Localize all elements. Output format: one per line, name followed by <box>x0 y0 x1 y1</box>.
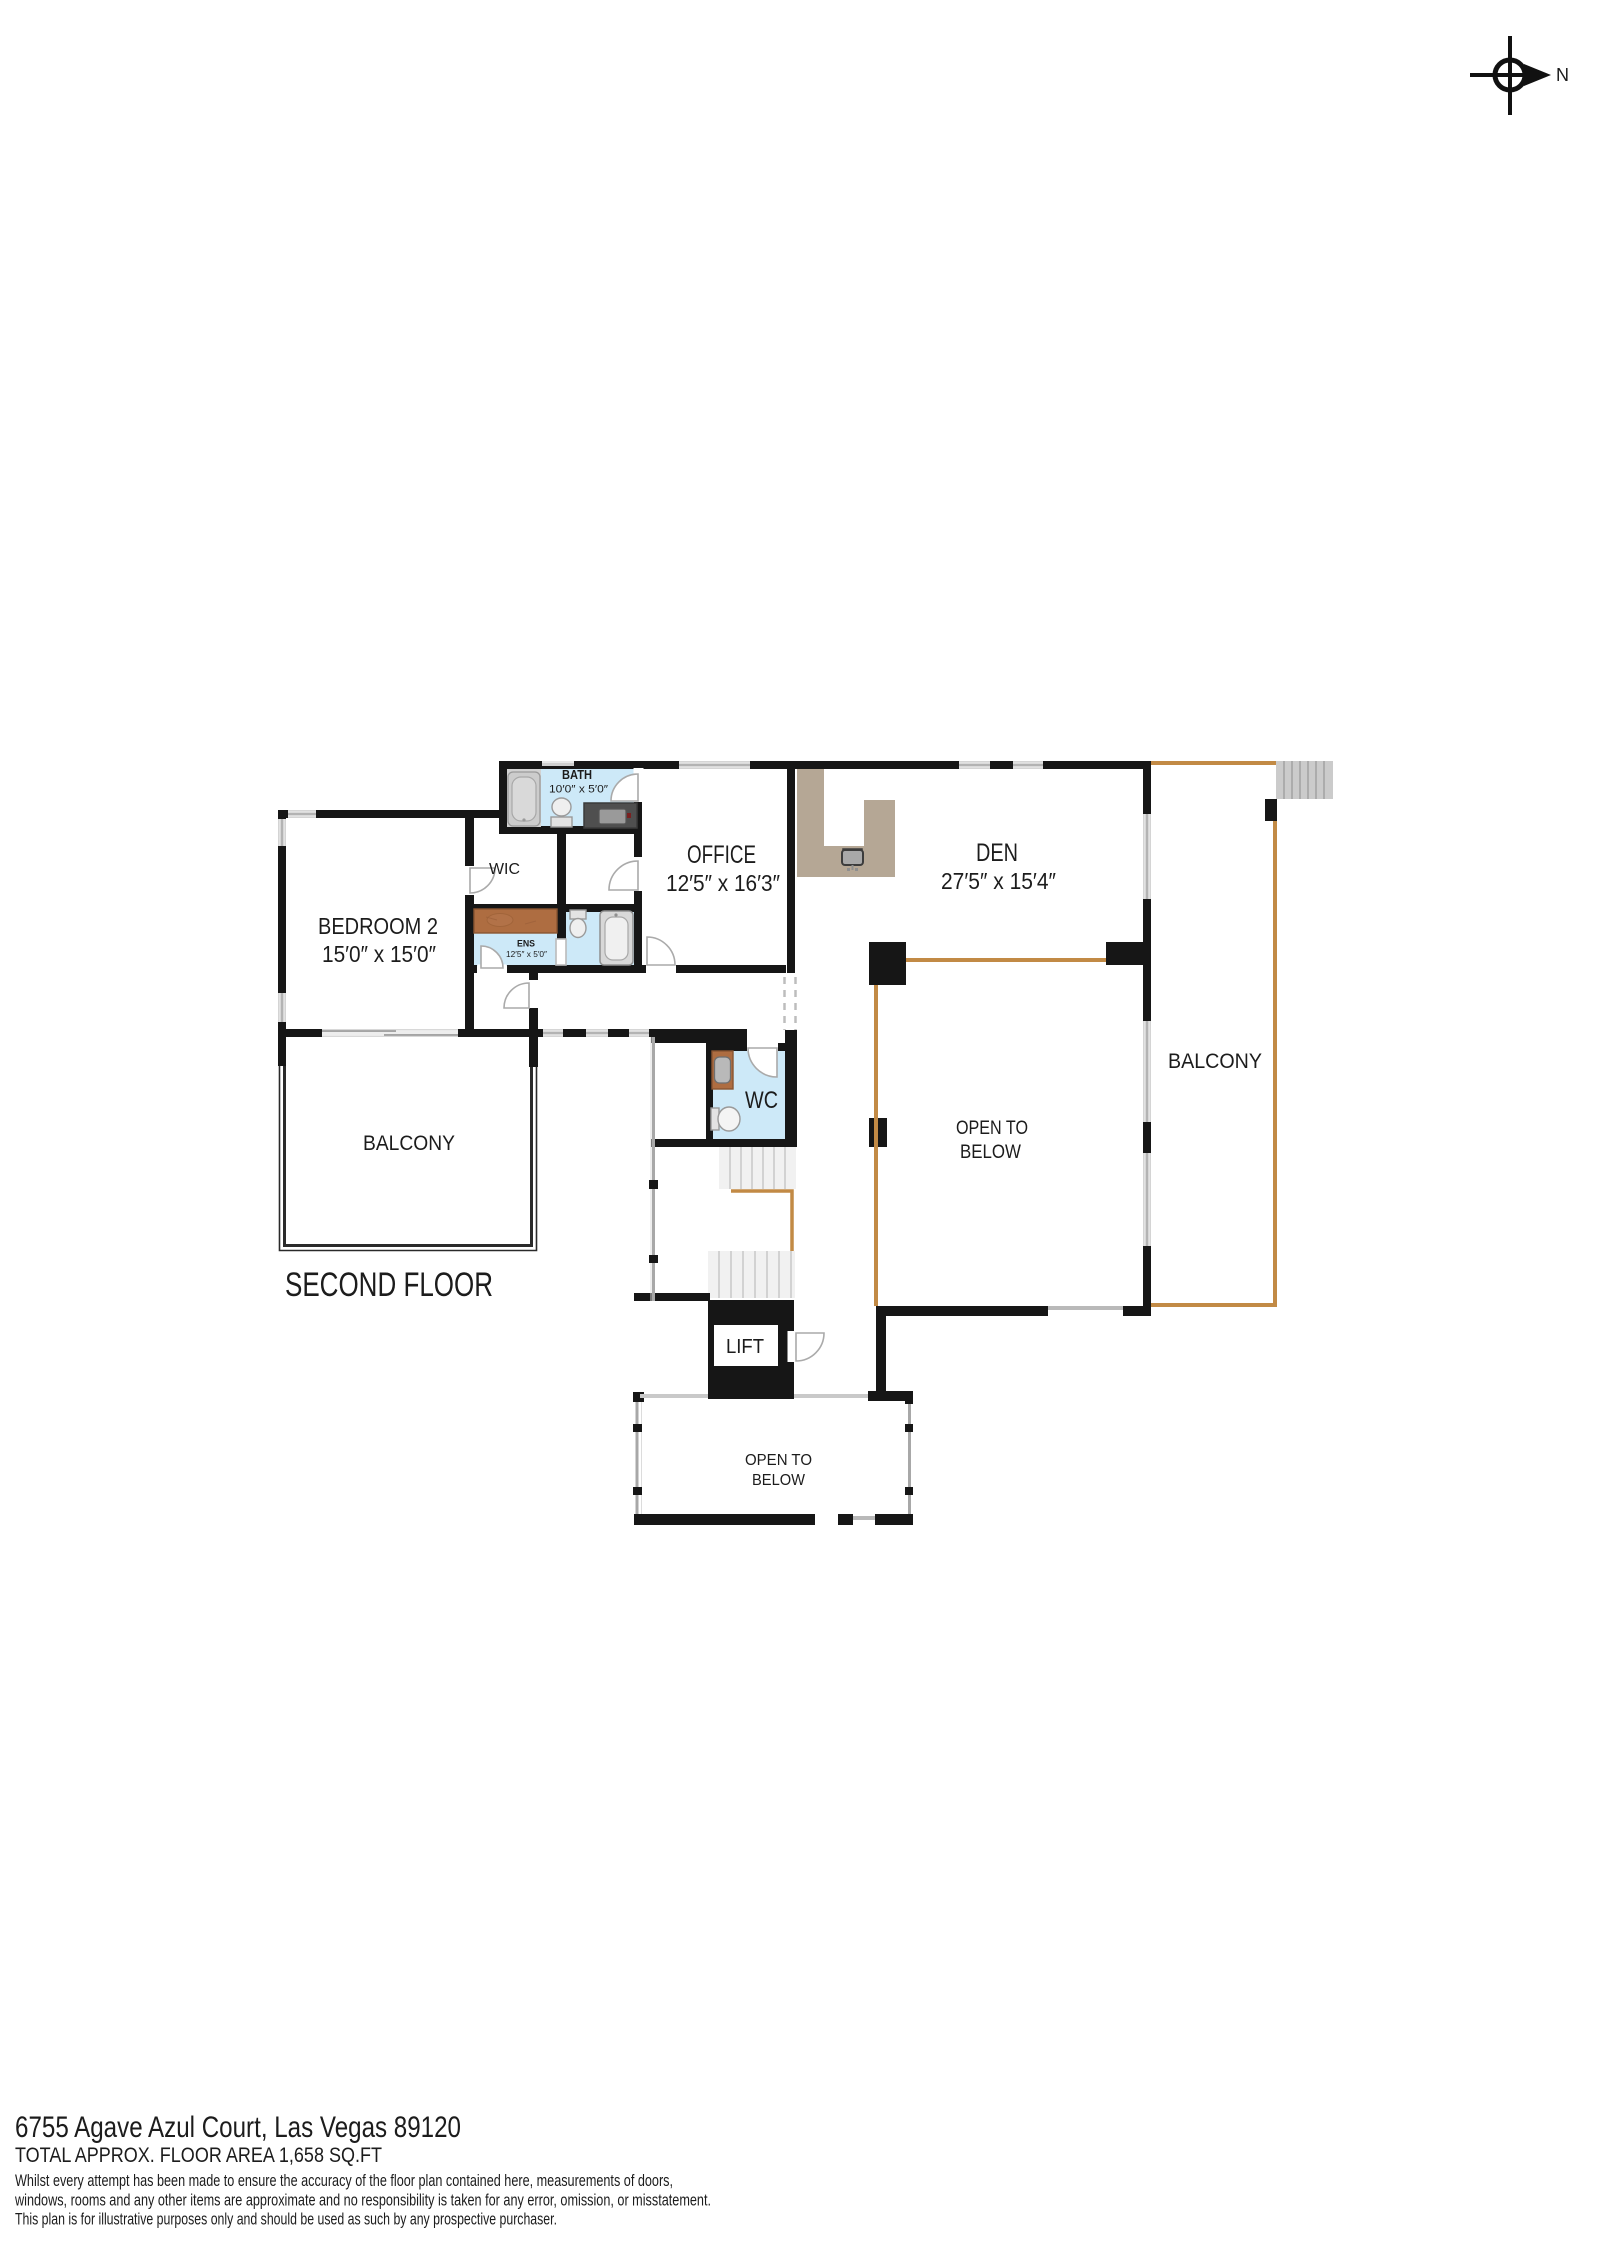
svg-text:LIFT: LIFT <box>726 1336 764 1358</box>
svg-text:windows, rooms and any other i: windows, rooms and any other items are a… <box>14 2192 711 2210</box>
svg-text:OFFICE: OFFICE <box>687 841 756 869</box>
svg-text:10′0″ x 5′0″: 10′0″ x 5′0″ <box>549 784 608 796</box>
svg-text:N: N <box>1556 65 1569 85</box>
svg-text:BELOW: BELOW <box>752 1472 806 1489</box>
svg-text:WIC: WIC <box>489 861 520 878</box>
svg-text:ENS: ENS <box>517 939 535 949</box>
svg-text:This plan is for illustrative: This plan is for illustrative purposes o… <box>15 2211 557 2229</box>
svg-text:DEN: DEN <box>976 839 1018 867</box>
svg-text:BEDROOM 2: BEDROOM 2 <box>318 913 438 939</box>
svg-text:27′5″ x 15′4″: 27′5″ x 15′4″ <box>941 868 1056 894</box>
svg-text:OPEN TO: OPEN TO <box>745 1452 812 1469</box>
svg-text:15′0″ x 15′0″: 15′0″ x 15′0″ <box>322 941 436 967</box>
svg-text:12′5″ x 16′3″: 12′5″ x 16′3″ <box>666 870 780 896</box>
svg-text:SECOND FLOOR: SECOND FLOOR <box>285 1266 493 1304</box>
svg-text:TOTAL APPROX. FLOOR AREA 1,658: TOTAL APPROX. FLOOR AREA 1,658 SQ.FT <box>15 2144 382 2167</box>
svg-text:Whilst every attempt has been: Whilst every attempt has been made to en… <box>15 2172 673 2190</box>
svg-text:BATH: BATH <box>562 768 592 782</box>
svg-text:WC: WC <box>745 1087 778 1114</box>
svg-text:OPEN TO: OPEN TO <box>956 1118 1028 1139</box>
svg-text:BELOW: BELOW <box>960 1142 1021 1163</box>
svg-text:6755 Agave Azul Court, Las Veg: 6755 Agave Azul Court, Las Vegas 89120 <box>15 2111 461 2144</box>
svg-text:BALCONY: BALCONY <box>363 1132 455 1155</box>
svg-text:12′5″ x 5′0″: 12′5″ x 5′0″ <box>506 949 547 959</box>
svg-text:BALCONY: BALCONY <box>1168 1050 1262 1073</box>
